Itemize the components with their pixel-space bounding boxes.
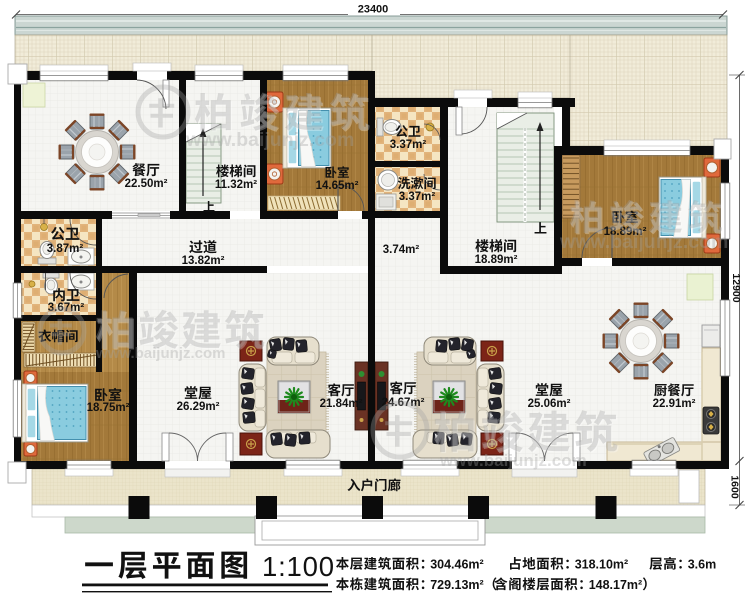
svg-text:www.baijunjz.com: www.baijunjz.com (559, 231, 728, 253)
svg-text:22.91m²: 22.91m² (653, 398, 696, 410)
svg-text:3.74m²: 3.74m² (383, 244, 420, 256)
svg-text:3.37m²: 3.37m² (390, 139, 427, 151)
svg-text:www.baijunjz.com: www.baijunjz.com (185, 129, 354, 151)
svg-text:26.29m²: 26.29m² (177, 401, 220, 413)
svg-text:23400: 23400 (358, 4, 389, 16)
svg-text:11.32m²: 11.32m² (215, 179, 257, 191)
svg-text:25.06m²: 25.06m² (528, 398, 571, 410)
svg-text:www.baijunjz.com: www.baijunjz.com (439, 451, 587, 470)
svg-text:1600: 1600 (729, 475, 741, 499)
svg-text:318.10m²: 318.10m² (575, 558, 629, 572)
svg-text:3.87m²: 3.87m² (47, 243, 84, 255)
svg-text:22.50m²: 22.50m² (125, 178, 168, 190)
svg-text:304.46m²: 304.46m² (430, 558, 484, 572)
svg-text:729.13m²: 729.13m² (430, 578, 484, 592)
svg-text:3.37m²: 3.37m² (399, 191, 436, 203)
svg-text:1:100: 1:100 (262, 551, 335, 582)
svg-text:18.75m²: 18.75m² (87, 402, 130, 414)
svg-text:www.baijunjz.com: www.baijunjz.com (95, 345, 225, 362)
svg-text:148.17m²: 148.17m² (589, 578, 643, 592)
svg-text:3.6m: 3.6m (688, 558, 717, 572)
svg-text:21.84m²: 21.84m² (320, 398, 363, 410)
svg-text:13.82m²: 13.82m² (182, 255, 225, 267)
svg-text:12900: 12900 (730, 273, 742, 302)
svg-text:18.89m²: 18.89m² (475, 254, 518, 266)
svg-text:14.65m²: 14.65m² (316, 180, 359, 192)
